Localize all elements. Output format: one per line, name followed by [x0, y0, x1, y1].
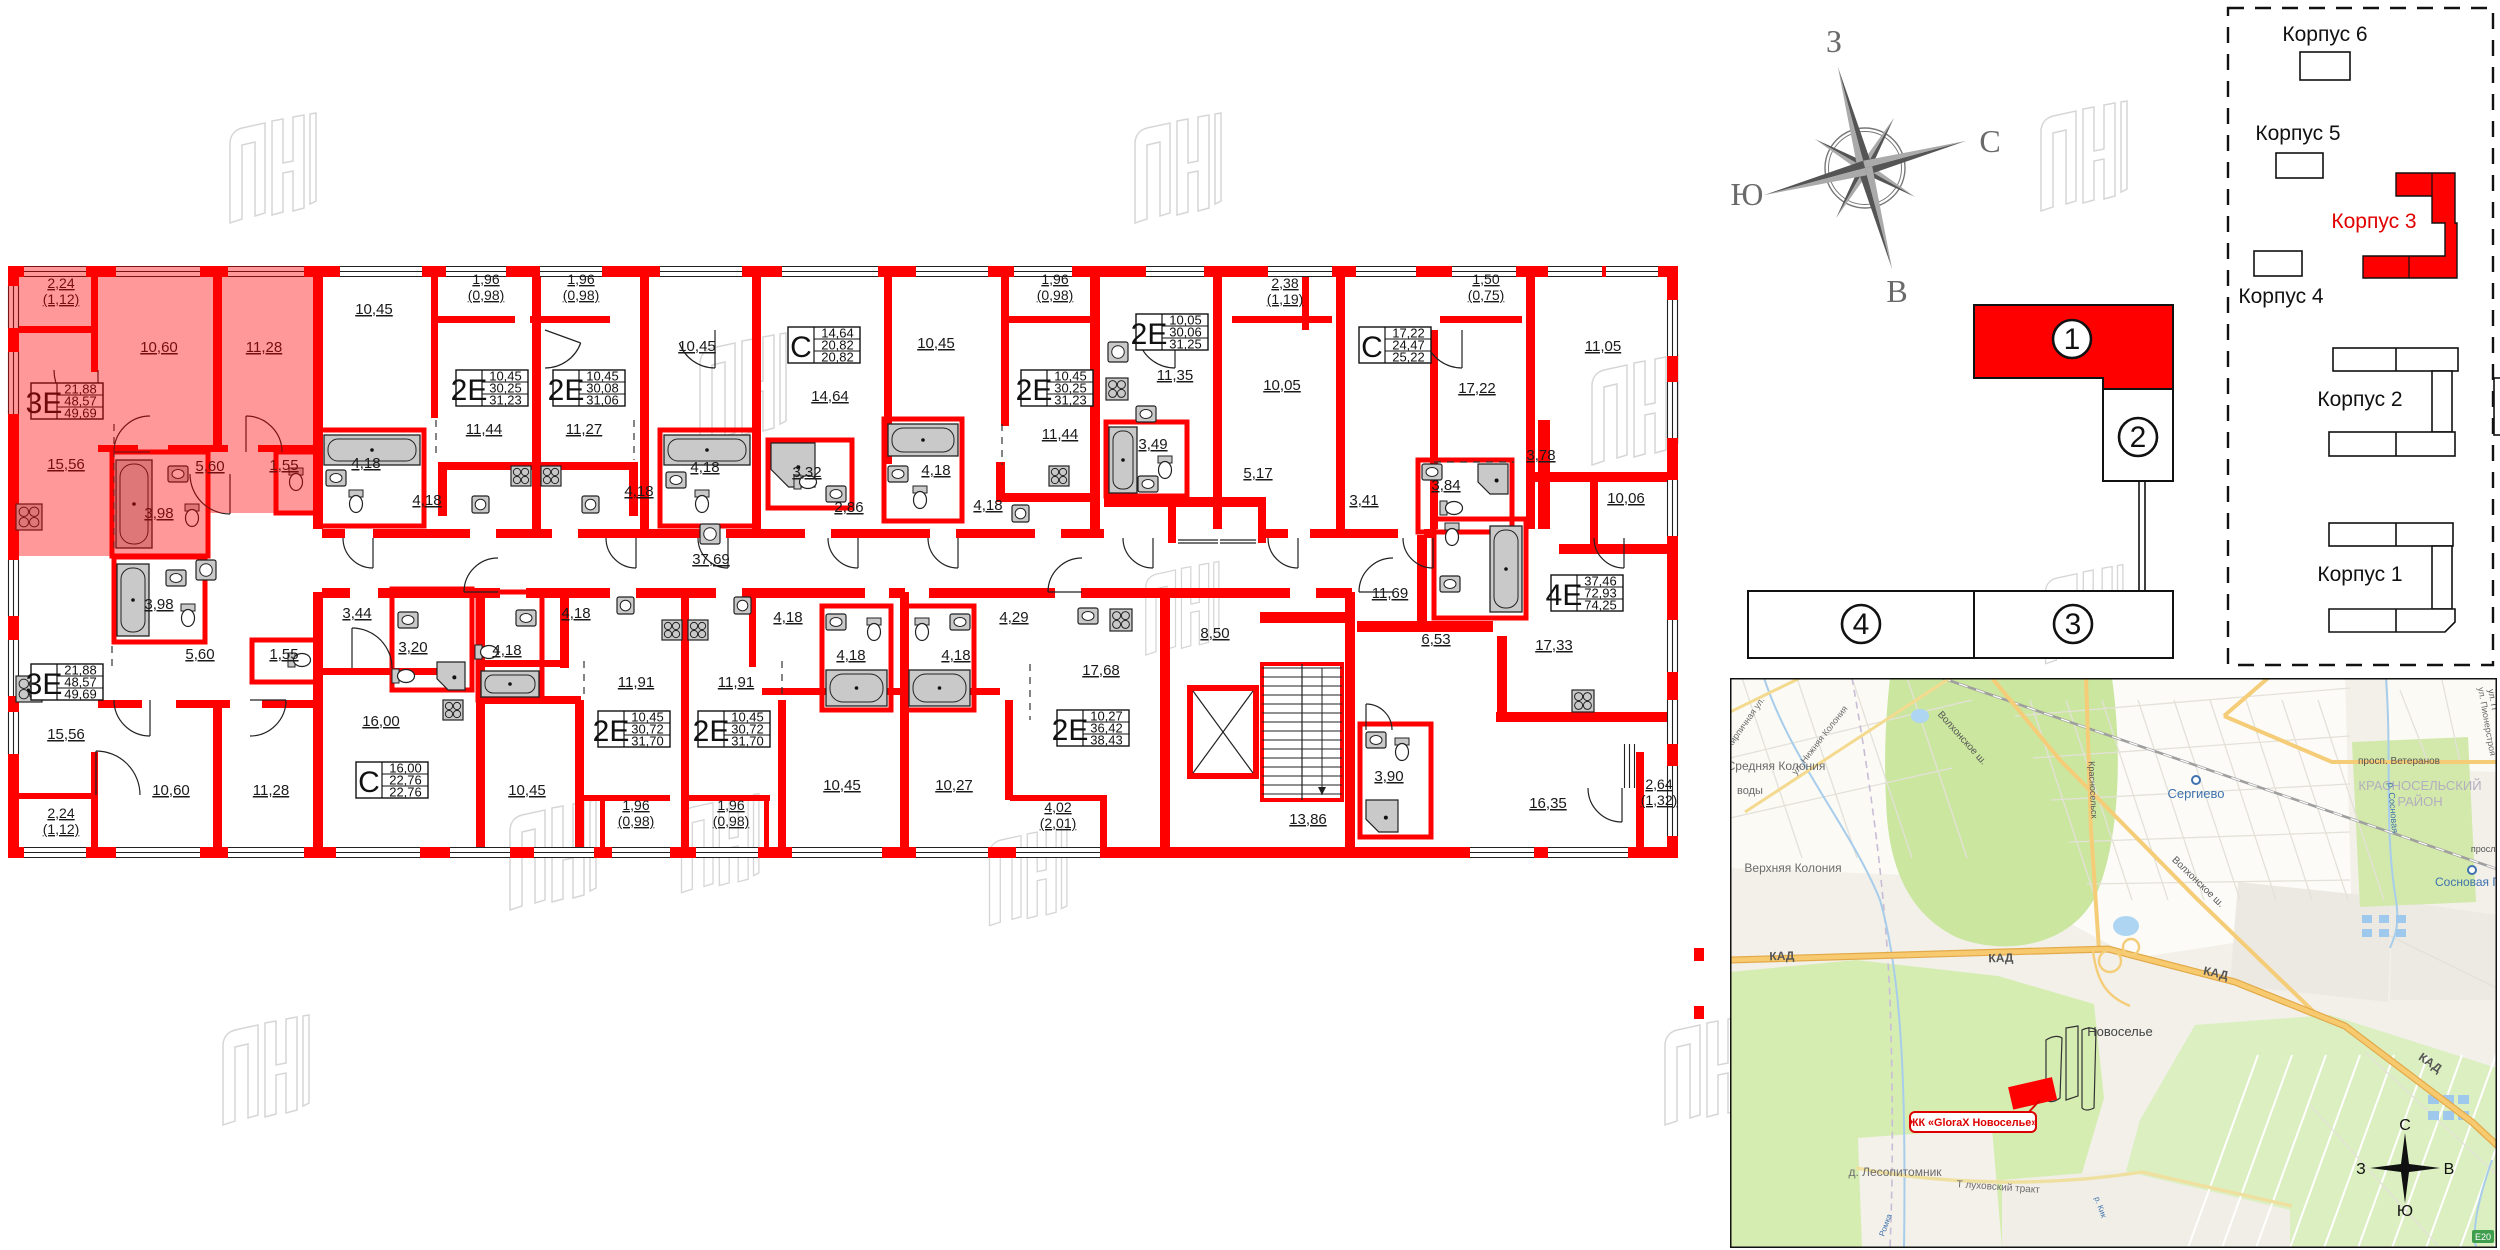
svg-text:4,18: 4,18: [941, 647, 970, 664]
svg-text:3,98: 3,98: [144, 596, 173, 613]
svg-text:С: С: [1979, 123, 2000, 159]
svg-text:17,68: 17,68: [1082, 662, 1120, 679]
svg-text:2Е: 2Е: [593, 715, 630, 748]
svg-text:3,90: 3,90: [1374, 768, 1403, 785]
svg-text:17,22: 17,22: [1458, 380, 1496, 397]
svg-text:11,05: 11,05: [1585, 338, 1621, 355]
svg-text:(1,19): (1,19): [1267, 291, 1304, 307]
svg-text:37,69: 37,69: [692, 551, 730, 568]
svg-text:31,70: 31,70: [631, 734, 664, 749]
svg-text:1,50: 1,50: [1472, 271, 1499, 287]
svg-text:2,38: 2,38: [1271, 275, 1298, 291]
svg-text:Верхняя Колония: Верхняя Колония: [1744, 861, 1841, 875]
svg-text:Корпус 5: Корпус 5: [2255, 122, 2340, 145]
svg-text:16,35: 16,35: [1529, 795, 1567, 812]
svg-text:1: 1: [2064, 323, 2081, 356]
svg-text:4,18: 4,18: [412, 492, 441, 509]
svg-text:3,44: 3,44: [342, 605, 371, 622]
svg-text:КРАСНОСЕЛЬСКИЙ: КРАСНОСЕЛЬСКИЙ: [2358, 778, 2481, 793]
svg-text:4,18: 4,18: [921, 462, 950, 479]
svg-text:3Е: 3Е: [26, 668, 63, 701]
svg-text:11,91: 11,91: [618, 674, 654, 691]
svg-text:1,55: 1,55: [269, 646, 298, 663]
svg-text:3,20: 3,20: [398, 639, 427, 656]
svg-text:Корпус 4: Корпус 4: [2238, 285, 2324, 308]
svg-text:(0,98): (0,98): [618, 813, 655, 829]
svg-text:17,33: 17,33: [1535, 637, 1573, 654]
svg-text:В: В: [2444, 1161, 2455, 1178]
svg-text:З: З: [2356, 1161, 2366, 1178]
svg-text:Корпус 1: Корпус 1: [2317, 563, 2402, 586]
svg-text:4,18: 4,18: [690, 459, 719, 476]
svg-text:10,45: 10,45: [917, 335, 955, 352]
svg-text:6,53: 6,53: [1421, 631, 1450, 648]
svg-text:10,45: 10,45: [678, 338, 716, 355]
svg-text:4,18: 4,18: [836, 647, 865, 664]
svg-text:14,64: 14,64: [811, 388, 849, 405]
svg-text:С: С: [790, 331, 812, 364]
svg-text:2Е: 2Е: [1052, 714, 1089, 747]
svg-text:15,56: 15,56: [47, 726, 85, 743]
svg-text:3,84: 3,84: [1431, 477, 1460, 494]
svg-text:(1,32): (1,32): [1641, 792, 1678, 808]
svg-text:2,86: 2,86: [834, 499, 863, 516]
svg-text:25,22: 25,22: [1392, 350, 1425, 365]
svg-text:Корпус 2: Корпус 2: [2317, 388, 2402, 411]
svg-text:4Е: 4Е: [1546, 579, 1583, 612]
svg-text:16,00: 16,00: [362, 713, 400, 730]
svg-text:10,06: 10,06: [1607, 490, 1645, 507]
svg-text:3,49: 3,49: [1138, 436, 1167, 453]
svg-text:3,78: 3,78: [1526, 447, 1555, 464]
svg-text:11,44: 11,44: [466, 421, 502, 438]
svg-text:РАЙОН: РАЙОН: [2397, 794, 2442, 809]
svg-text:3,32: 3,32: [792, 464, 821, 481]
svg-text:10,05: 10,05: [1263, 377, 1301, 394]
svg-text:1,96: 1,96: [717, 797, 744, 813]
svg-text:Новоселье: Новоселье: [2087, 1024, 2153, 1039]
svg-text:38,43: 38,43: [1090, 733, 1123, 748]
svg-text:4,18: 4,18: [351, 455, 380, 472]
svg-text:1,96: 1,96: [472, 271, 499, 287]
svg-text:(0,98): (0,98): [713, 813, 750, 829]
svg-text:2Е: 2Е: [1131, 318, 1168, 351]
svg-text:11,44: 11,44: [1042, 426, 1078, 443]
svg-text:Ю: Ю: [2397, 1203, 2413, 1220]
svg-text:1,96: 1,96: [1041, 271, 1068, 287]
svg-text:2Е: 2Е: [1016, 374, 1053, 407]
svg-text:4,18: 4,18: [973, 497, 1002, 514]
svg-text:31,70: 31,70: [731, 734, 764, 749]
svg-text:20,82: 20,82: [821, 350, 854, 365]
svg-text:4,18: 4,18: [492, 642, 521, 659]
svg-text:1,96: 1,96: [567, 271, 594, 287]
svg-text:11,27: 11,27: [566, 421, 602, 438]
svg-text:д. Лесопитомник: д. Лесопитомник: [1848, 1165, 1942, 1179]
svg-text:2,24: 2,24: [47, 805, 74, 821]
svg-text:(2,01): (2,01): [1040, 815, 1077, 831]
svg-text:11,91: 11,91: [718, 674, 754, 691]
svg-text:5,17: 5,17: [1243, 465, 1272, 482]
svg-text:31,25: 31,25: [1169, 337, 1202, 352]
svg-text:Корпус 6: Корпус 6: [2282, 23, 2367, 46]
svg-text:10,45: 10,45: [355, 301, 393, 318]
svg-text:4,18: 4,18: [561, 605, 590, 622]
svg-text:4,18: 4,18: [773, 609, 802, 626]
svg-text:4,18: 4,18: [624, 483, 653, 500]
svg-text:Корпус 3: Корпус 3: [2331, 210, 2416, 233]
svg-text:11,69: 11,69: [1372, 585, 1408, 602]
svg-text:(1,12): (1,12): [43, 821, 80, 837]
svg-text:31,23: 31,23: [1054, 393, 1087, 408]
svg-text:воды: воды: [1737, 785, 1763, 797]
svg-text:просп. Ветеранов: просп. Ветеранов: [2358, 756, 2440, 767]
svg-text:Сергиево: Сергиево: [2167, 786, 2224, 801]
svg-text:13,86: 13,86: [1289, 811, 1327, 828]
svg-text:11,28: 11,28: [253, 782, 289, 799]
svg-text:31,23: 31,23: [489, 393, 522, 408]
svg-text:31,06: 31,06: [586, 393, 619, 408]
svg-text:22,76: 22,76: [389, 785, 422, 800]
svg-text:КАД: КАД: [1988, 951, 2014, 966]
svg-text:10,60: 10,60: [152, 782, 190, 799]
svg-text:ЖК «GloraX Новоселье»: ЖК «GloraX Новоселье»: [1908, 1117, 2038, 1129]
svg-text:(0,98): (0,98): [1037, 287, 1074, 303]
svg-text:С: С: [358, 766, 380, 799]
svg-text:74,25: 74,25: [1584, 598, 1617, 613]
svg-text:З: З: [1826, 23, 1842, 59]
svg-text:1,96: 1,96: [622, 797, 649, 813]
svg-text:10,45: 10,45: [508, 782, 546, 799]
svg-text:11,35: 11,35: [1157, 367, 1193, 384]
svg-text:3: 3: [2065, 608, 2082, 641]
svg-text:Сосновая П: Сосновая П: [2435, 875, 2500, 889]
svg-text:С: С: [1361, 331, 1383, 364]
svg-text:Средняя Колония: Средняя Колония: [1727, 759, 1826, 773]
svg-text:2Е: 2Е: [548, 374, 585, 407]
svg-text:2: 2: [2130, 421, 2147, 454]
svg-text:В: В: [1886, 273, 1907, 309]
svg-text:3,41: 3,41: [1349, 492, 1378, 509]
svg-text:5,60: 5,60: [185, 646, 214, 663]
svg-text:(0,75): (0,75): [1468, 287, 1505, 303]
svg-text:4,29: 4,29: [999, 609, 1028, 626]
svg-text:2,64: 2,64: [1645, 776, 1672, 792]
svg-text:8,50: 8,50: [1200, 625, 1229, 642]
svg-text:С: С: [2399, 1117, 2411, 1134]
svg-text:4,02: 4,02: [1044, 799, 1071, 815]
svg-text:2Е: 2Е: [451, 374, 488, 407]
svg-text:49,69: 49,69: [64, 687, 97, 702]
svg-text:(0,98): (0,98): [468, 287, 505, 303]
svg-text:(0,98): (0,98): [563, 287, 600, 303]
svg-text:КАД: КАД: [1769, 949, 1795, 964]
svg-text:E20: E20: [2475, 1232, 2491, 1242]
svg-text:10,27: 10,27: [935, 777, 973, 794]
svg-text:10,45: 10,45: [823, 777, 861, 794]
svg-text:2Е: 2Е: [693, 715, 730, 748]
svg-text:Ю: Ю: [1731, 176, 1764, 212]
svg-text:4: 4: [1853, 608, 1870, 641]
